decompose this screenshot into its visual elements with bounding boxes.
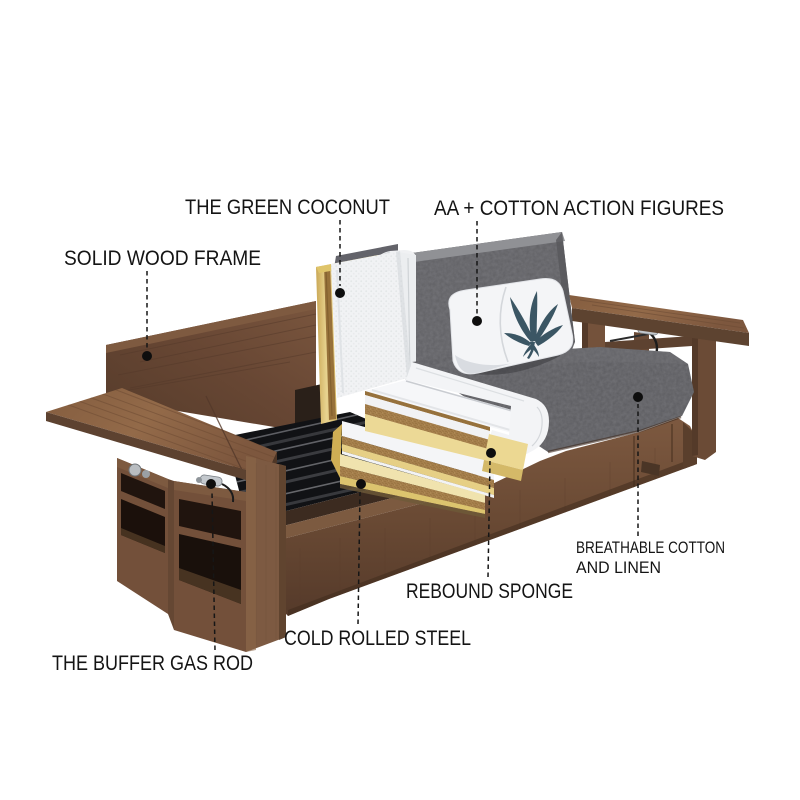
svg-text:BREATHABLE COTTON: BREATHABLE COTTON [576,538,725,557]
svg-text:THE GREEN COCONUT: THE GREEN COCONUT [185,196,390,219]
svg-text:AND LINEN: AND LINEN [576,558,661,577]
svg-text:THE BUFFER GAS ROD: THE BUFFER GAS ROD [52,652,253,675]
svg-text:REBOUND SPONGE: REBOUND SPONGE [406,580,573,603]
svg-text:COLD ROLLED STEEL: COLD ROLLED STEEL [284,627,471,650]
svg-text:SOLID WOOD FRAME: SOLID WOOD FRAME [64,247,261,270]
svg-text:AA + COTTON ACTION FIGURES: AA + COTTON ACTION FIGURES [434,197,724,220]
